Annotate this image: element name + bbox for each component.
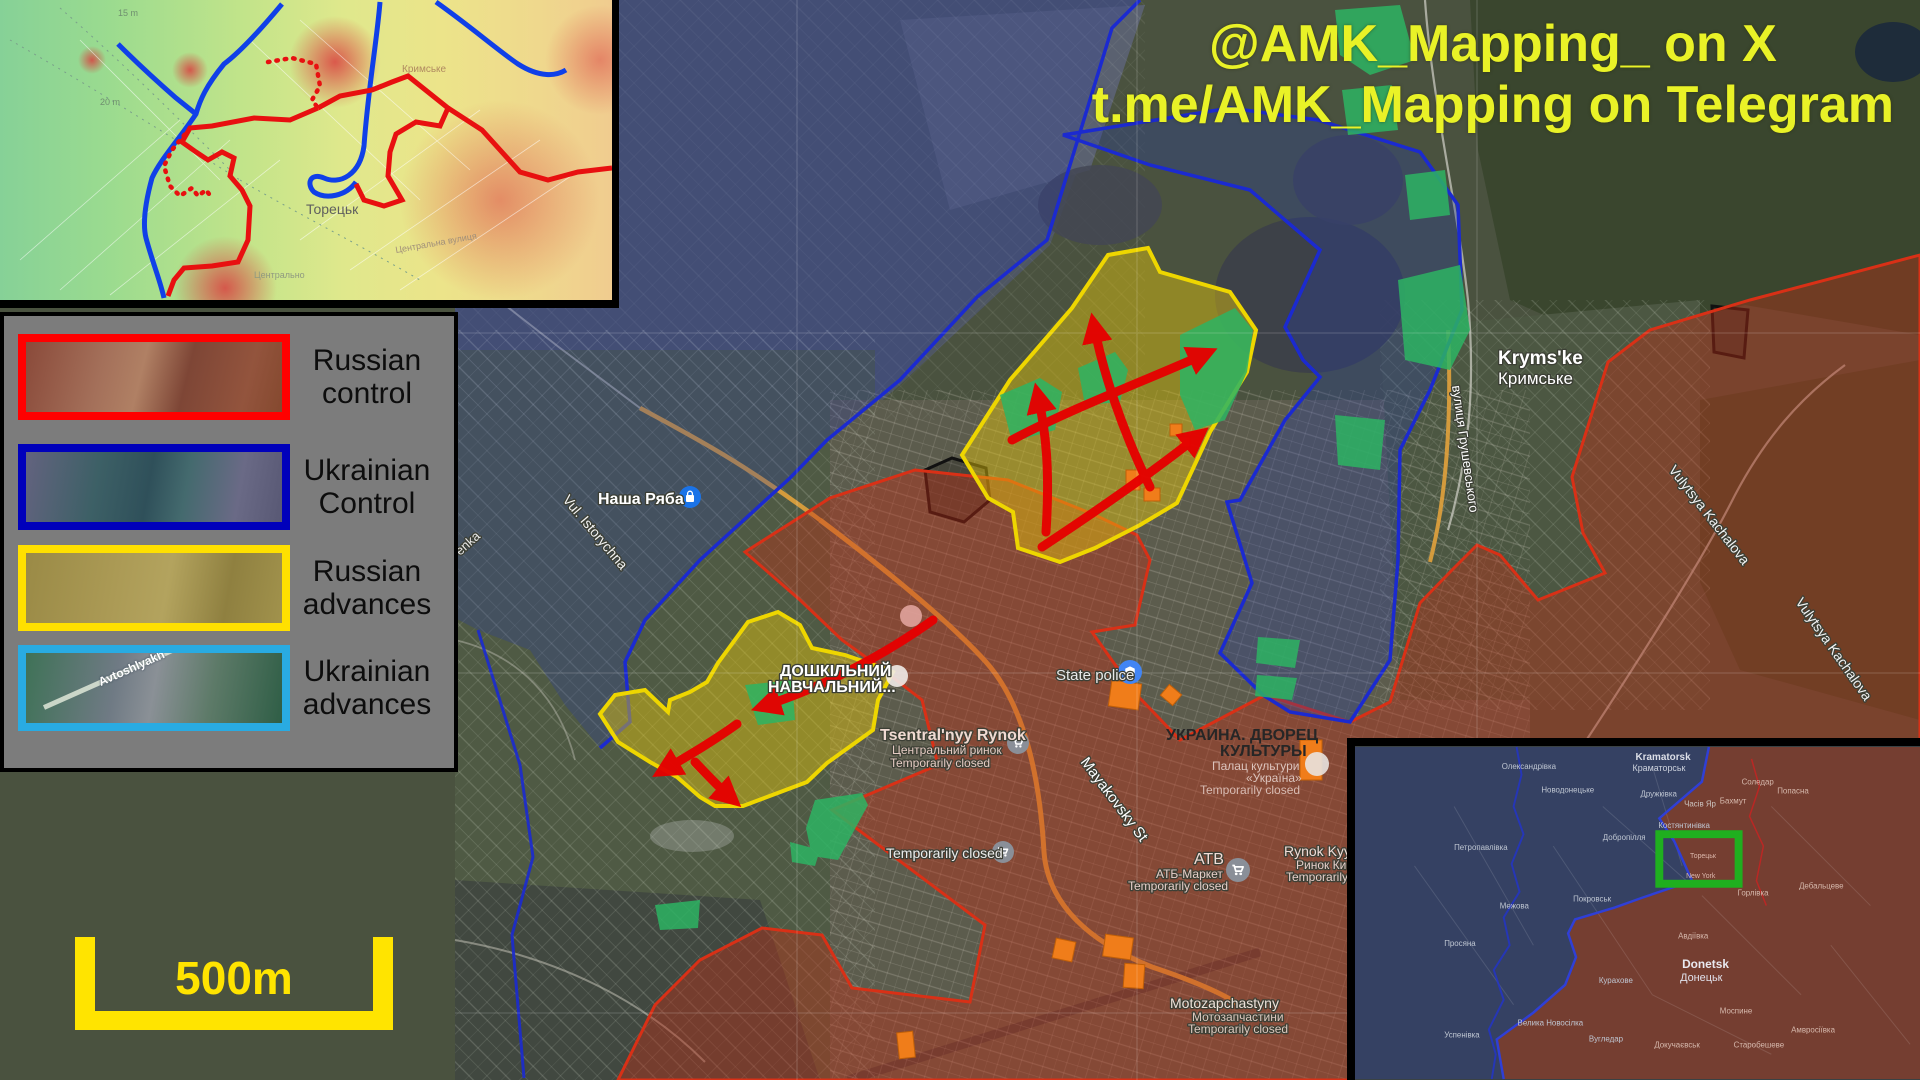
- scale-bar: 500m: [75, 937, 393, 1030]
- ov-label-vuhledar: Вугледар: [1589, 1034, 1624, 1043]
- legend-item-ukrainian-advances: Avtoshlyakh Ukrainianadvances: [18, 645, 448, 731]
- label-palace-closed: Temporarily closed: [1200, 783, 1300, 797]
- label-krymske-ua: Кримське: [1498, 369, 1573, 388]
- attribution-line-x: @AMK_Mapping_ on X: [1092, 14, 1894, 75]
- label-tsentralnyy-rynok-closed: Temporarily closed: [890, 756, 990, 770]
- label-krymske-en: Kryms'ke: [1498, 348, 1583, 369]
- legend-panel: Russiancontrol UkrainianControl Russiana…: [0, 312, 458, 772]
- attribution-line-telegram: t.me/AMK_Mapping on Telegram: [1092, 75, 1894, 136]
- ukrainian-advances-swatch: Avtoshlyakh: [18, 645, 290, 731]
- topo-label-15m: 15 m: [118, 8, 138, 18]
- ov-label-dokuchajevsk: Докучаєвськ: [1654, 1040, 1700, 1049]
- swatch-road: [43, 645, 219, 710]
- ov-label-novodonetske: Новодонецьке: [1541, 786, 1594, 795]
- scale-bar-label: 500m: [75, 951, 393, 1005]
- label-doshkilnyi-1: ДОШКІЛЬНИЙ: [780, 661, 891, 680]
- ov-label-velyka-novosilka: Велика Новосілка: [1518, 1019, 1584, 1028]
- legend-label: UkrainianControl: [286, 444, 448, 530]
- ov-label-popasna: Попасна: [1777, 787, 1809, 796]
- ov-label-mezhova: Межова: [1500, 902, 1530, 911]
- label-motozapchastyny-closed: Temporarily closed: [1188, 1022, 1288, 1036]
- ov-label-pokrovsk: Покровськ: [1573, 895, 1612, 904]
- war-map-graphic: Наша РябаVul. IstorychnaenkaKryms'keКрим…: [0, 0, 1920, 1080]
- ukrainian-control-swatch: [18, 444, 290, 530]
- topo-label-krymske: Кримське: [402, 64, 447, 75]
- ov-label-kramatorsk-en: Kramatorsk: [1636, 752, 1692, 763]
- ov-label-toretsk: Торецьк: [1690, 853, 1717, 860]
- ov-label-oleksandrivka: Олександрівка: [1502, 762, 1557, 771]
- ov-label-starobesheve: Старобешеве: [1734, 1040, 1785, 1049]
- legend-item-russian-advances: Russianadvances: [18, 545, 448, 631]
- label-temporarily-closed: Temporarily closed: [886, 845, 1003, 861]
- legend-item-russian-control: Russiancontrol: [18, 334, 448, 420]
- swatch-road-label: Avtoshlyakh: [96, 647, 166, 689]
- legend-item-ukrainian-control: UkrainianControl: [18, 444, 448, 530]
- ov-label-new-york: New York: [1686, 873, 1716, 880]
- ov-label-dobropillya: Добропілля: [1603, 833, 1646, 842]
- label-atb-closed: Temporarily closed: [1128, 879, 1228, 893]
- label-motozapchastyny: Motozapchastyny: [1170, 995, 1279, 1011]
- label-state-police: State police: [1056, 667, 1134, 684]
- label-palace-title-1: УКРАИНА. ДВОРЕЦ: [1166, 727, 1318, 744]
- label-tsentralnyy-rynok-ua: Центральний ринок: [892, 743, 1002, 757]
- market-cart-icon: [1226, 858, 1250, 882]
- regional-overview-inset: ОлександрівкаKramatorskКраматорськНоводо…: [1347, 738, 1920, 1080]
- topographic-frontline-inset: ТорецькКримське20 m15 mЦентральна вулиця…: [0, 0, 619, 308]
- ov-label-kostyantynivka: Костянтинівка: [1658, 821, 1710, 830]
- ov-label-donetsk-en: Donetsk: [1682, 957, 1729, 971]
- poi-circle-icon: [1305, 752, 1329, 776]
- ov-label-petropavlivka: Петропавлівка: [1454, 843, 1508, 852]
- ov-label-amvrosiivka: Амвросіївка: [1791, 1025, 1835, 1034]
- ov-label-kramatorsk-ua: Краматорськ: [1633, 763, 1686, 773]
- legend-label: Russiancontrol: [286, 334, 448, 420]
- legend-label: Russianadvances: [286, 545, 448, 631]
- label-tsentralnyy-rynok: Tsentral'nyy Rynok: [880, 727, 1026, 744]
- russian-advances-swatch: [18, 545, 290, 631]
- label-rynok-kyy: Rynok Kyy: [1284, 843, 1351, 859]
- ov-label-avdiivka: Авдіївка: [1678, 931, 1709, 940]
- topo-label-toretsk: Торецьк: [306, 201, 359, 217]
- ov-label-kurakhove: Курахове: [1599, 976, 1634, 985]
- ov-label-bakhmut: Бахмут: [1720, 796, 1747, 805]
- ov-label-horlivka: Горлівка: [1738, 889, 1769, 898]
- label-nasha-ryaba: Наша Ряба: [598, 491, 684, 508]
- label-atb: АТВ: [1194, 851, 1224, 868]
- ov-label-donetsk-ua: Донецьк: [1680, 972, 1723, 984]
- ov-label-druzhkivka: Дружківка: [1640, 790, 1677, 799]
- ov-label-debaltseve: Дебальцеве: [1799, 882, 1844, 891]
- ov-label-soledar: Соледар: [1742, 778, 1775, 787]
- scale-bar-bar: [75, 1011, 393, 1030]
- attribution: @AMK_Mapping_ on X t.me/AMK_Mapping on T…: [1092, 14, 1894, 136]
- ov-label-uspenivka: Успенівка: [1444, 1030, 1480, 1039]
- ov-label-mospyne: Моспине: [1720, 1007, 1753, 1016]
- ov-label-chasiv-yar: Часів Яр: [1684, 799, 1716, 808]
- label-doshkilnyi-2: НАВЧАЛЬНИЙ...: [768, 677, 896, 696]
- topo-label-20m: 20 m: [100, 97, 120, 107]
- label-palace-title-2: КУЛЬТУРЫ: [1220, 743, 1307, 760]
- russian-control-swatch: [18, 334, 290, 420]
- ov-label-prosiana: Просяна: [1444, 939, 1476, 948]
- topo-label-tsentralno: Центрально: [254, 270, 305, 280]
- poi-circle-icon: [900, 605, 922, 627]
- legend-label: Ukrainianadvances: [286, 645, 448, 731]
